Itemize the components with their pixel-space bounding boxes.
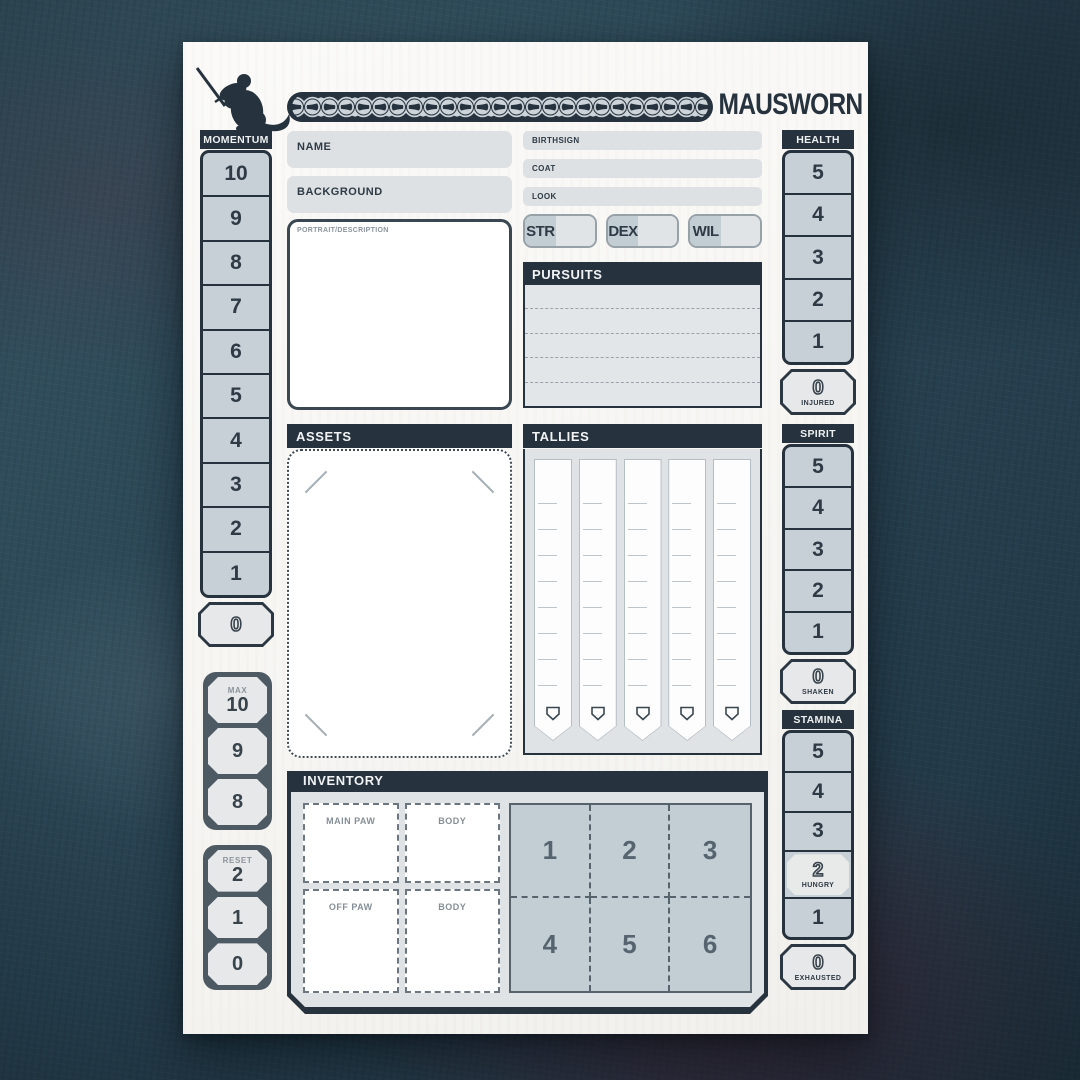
tally-ticks	[583, 503, 602, 697]
crop-mark-icon	[472, 471, 495, 494]
momentum-max-box: MAX 10 9 8	[203, 672, 272, 830]
stamina-cell[interactable]: 4	[785, 771, 851, 811]
max-cell[interactable]: 9	[208, 728, 267, 774]
pursuits-header: PURSUITS	[523, 262, 762, 286]
spirit-zero-box[interactable]: 0 SHAKEN	[780, 659, 856, 704]
pursuit-row[interactable]	[525, 358, 760, 382]
spirit-track: 5 4 3 2 1	[782, 444, 854, 655]
pursuits-body	[523, 285, 762, 408]
stamina-header: STAMINA	[782, 710, 854, 729]
spirit-cell[interactable]: 1	[785, 611, 851, 652]
name-field[interactable]: NAME	[287, 131, 512, 168]
health-cell[interactable]: 3	[785, 235, 851, 277]
wil-value-box[interactable]	[721, 216, 760, 246]
stats-row: STR DEX WIL	[523, 214, 762, 248]
background-label: BACKGROUND	[297, 186, 383, 198]
spirit-cell[interactable]: 4	[785, 486, 851, 527]
health-cell[interactable]: 1	[785, 320, 851, 362]
tally-ticks	[628, 503, 647, 697]
hungry-label: HUNGRY	[802, 882, 834, 889]
reset-cell[interactable]: 0	[208, 943, 267, 985]
stamina-cell[interactable]: 5	[785, 733, 851, 771]
stamina-hungry-cell[interactable]: 2 HUNGRY	[785, 850, 851, 897]
coat-field[interactable]: COAT	[523, 159, 762, 178]
dex-value-box[interactable]	[638, 216, 677, 246]
celtic-knot-band	[287, 92, 713, 122]
shaken-label: SHAKEN	[802, 689, 834, 696]
birthsign-field[interactable]: BIRTHSIGN	[523, 131, 762, 150]
inventory-cell-1[interactable]: 1	[511, 805, 591, 898]
crop-mark-icon	[305, 471, 328, 494]
str-value-box[interactable]	[556, 216, 595, 246]
tallies-header: TALLIES	[523, 424, 762, 448]
tallies-body	[523, 449, 762, 755]
spirit-cell[interactable]: 2	[785, 569, 851, 610]
stamina-cell[interactable]: 3	[785, 811, 851, 851]
momentum-cell[interactable]: 3	[203, 462, 269, 506]
momentum-header: MOMENTUM	[200, 130, 272, 149]
momentum-cell[interactable]: 8	[203, 240, 269, 284]
reset-cell[interactable]: RESET 2	[208, 850, 267, 892]
stat-dex: DEX	[606, 214, 680, 248]
shield-icon	[545, 706, 561, 721]
slot-off-paw[interactable]: OFF PAW	[303, 889, 399, 993]
momentum-cell[interactable]: 10	[203, 153, 269, 195]
health-track: 5 4 3 2 1	[782, 150, 854, 365]
pursuit-row[interactable]	[525, 285, 760, 309]
stamina-cell[interactable]: 1	[785, 897, 851, 937]
tally-ticks	[538, 503, 557, 697]
inventory-cell-2[interactable]: 2	[591, 805, 671, 898]
wil-label: WIL	[690, 216, 721, 246]
stamina-zero-box[interactable]: 0 EXHAUSTED	[780, 944, 856, 990]
coat-label: COAT	[532, 164, 556, 173]
health-cell[interactable]: 5	[785, 153, 851, 193]
health-header: HEALTH	[782, 130, 854, 149]
portrait-box[interactable]: PORTRAIT/DESCRIPTION	[287, 219, 512, 410]
momentum-zero-value: 0	[230, 615, 241, 635]
hungry-value: 2	[813, 861, 824, 880]
inventory-cell-6[interactable]: 6	[670, 898, 750, 991]
momentum-cell[interactable]: 5	[203, 373, 269, 417]
inventory-cell-3[interactable]: 3	[670, 805, 750, 898]
assets-header: ASSETS	[287, 424, 512, 448]
spirit-cell[interactable]: 3	[785, 528, 851, 569]
injured-value: 0	[812, 378, 823, 398]
assets-card-area[interactable]	[287, 449, 512, 758]
stamina-track: 5 4 3 2 HUNGRY 1	[782, 730, 854, 940]
str-label: STR	[525, 216, 556, 246]
slot-body-2[interactable]: BODY	[405, 889, 501, 993]
character-sheet: MAUSWORN MOMENTUM 10 9 8 7 6 5 4 3 2 1 0…	[183, 42, 868, 1034]
momentum-cell[interactable]: 7	[203, 284, 269, 328]
tally-strip[interactable]	[624, 459, 662, 741]
momentum-cell[interactable]: 9	[203, 195, 269, 239]
mouse-with-sword-icon	[189, 66, 293, 132]
stat-str: STR	[523, 214, 597, 248]
spirit-header: SPIRIT	[782, 424, 854, 443]
spirit-cell[interactable]: 5	[785, 447, 851, 486]
momentum-reset-box: RESET 2 1 0	[203, 845, 272, 990]
background-field[interactable]: BACKGROUND	[287, 176, 512, 213]
momentum-track: 10 9 8 7 6 5 4 3 2 1	[200, 150, 272, 598]
inventory-slots: MAIN PAW BODY OFF PAW BODY	[303, 803, 500, 993]
crop-mark-icon	[305, 714, 328, 737]
health-zero-box[interactable]: 0 INJURED	[780, 369, 856, 415]
look-label: LOOK	[532, 192, 557, 201]
textured-background: MAUSWORN MOMENTUM 10 9 8 7 6 5 4 3 2 1 0…	[0, 0, 1080, 1080]
page-title: MAUSWORN	[718, 88, 862, 122]
inventory-section: INVENTORY MAIN PAW BODY OFF PAW BODY 1 2…	[287, 768, 768, 1014]
dex-label: DEX	[608, 216, 639, 246]
tally-strip[interactable]	[579, 459, 617, 741]
pursuit-row[interactable]	[525, 309, 760, 333]
pursuit-row[interactable]	[525, 383, 760, 406]
momentum-cell[interactable]: 6	[203, 329, 269, 373]
tally-strip[interactable]	[668, 459, 706, 741]
exhausted-label: EXHAUSTED	[795, 975, 842, 982]
tally-strip[interactable]	[534, 459, 572, 741]
shield-icon	[679, 706, 695, 721]
health-cell[interactable]: 4	[785, 193, 851, 235]
injured-label: INJURED	[801, 400, 835, 407]
tally-strip[interactable]	[713, 459, 751, 741]
inventory-cell-4[interactable]: 4	[511, 898, 591, 991]
reset-cell[interactable]: 1	[208, 897, 267, 939]
momentum-cell[interactable]: 2	[203, 506, 269, 550]
tally-ticks	[672, 503, 691, 697]
shield-icon	[724, 706, 740, 721]
name-label: NAME	[297, 141, 331, 153]
momentum-cell[interactable]: 4	[203, 417, 269, 461]
crop-mark-icon	[472, 714, 495, 737]
tally-ticks	[717, 503, 736, 697]
shield-icon	[590, 706, 606, 721]
stat-wil: WIL	[688, 214, 762, 248]
momentum-cell[interactable]: 1	[203, 551, 269, 595]
slot-body-1[interactable]: BODY	[405, 803, 501, 883]
shaken-value: 0	[812, 667, 823, 687]
look-field[interactable]: LOOK	[523, 187, 762, 206]
max-cell[interactable]: MAX 10	[208, 677, 267, 723]
inventory-header: INVENTORY	[291, 768, 764, 792]
inventory-grid: 1 2 3 4 5 6	[509, 803, 752, 993]
inventory-cell-5[interactable]: 5	[591, 898, 671, 991]
momentum-zero-box[interactable]: 0	[198, 602, 274, 647]
birthsign-label: BIRTHSIGN	[532, 136, 580, 145]
health-cell[interactable]: 2	[785, 278, 851, 320]
slot-main-paw[interactable]: MAIN PAW	[303, 803, 399, 883]
portrait-label: PORTRAIT/DESCRIPTION	[297, 227, 389, 234]
pursuit-row[interactable]	[525, 334, 760, 358]
shield-icon	[635, 706, 651, 721]
max-cell[interactable]: 8	[208, 779, 267, 825]
exhausted-value: 0	[812, 953, 823, 973]
